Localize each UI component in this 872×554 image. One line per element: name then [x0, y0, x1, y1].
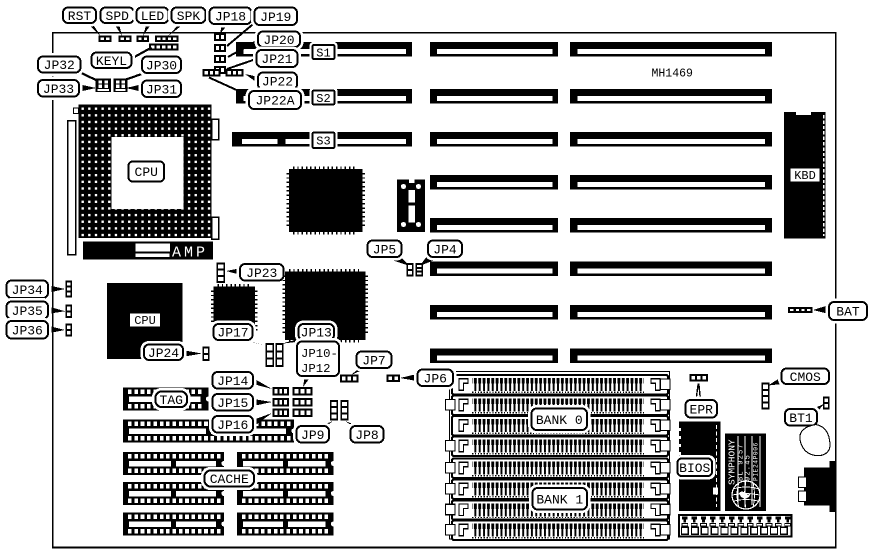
svg-text:SPD: SPD	[106, 9, 130, 24]
svg-text:JP14: JP14	[217, 374, 248, 389]
svg-text:JP19: JP19	[260, 10, 291, 25]
svg-text:BAT: BAT	[836, 305, 860, 320]
svg-text:LED: LED	[141, 9, 165, 24]
svg-text:JP34: JP34	[12, 283, 43, 298]
svg-text:JP31: JP31	[146, 82, 177, 97]
svg-text:TAG: TAG	[160, 393, 183, 408]
svg-text:JP18: JP18	[215, 9, 246, 24]
svg-text:JP22A: JP22A	[255, 94, 294, 109]
svg-text:92.45: 92.45	[745, 454, 753, 481]
svg-text:S3: S3	[316, 135, 330, 149]
svg-text:CPU: CPU	[134, 314, 156, 328]
svg-text:JP20: JP20	[263, 33, 294, 48]
svg-text:JP35: JP35	[12, 304, 43, 319]
svg-text:JP17: JP17	[217, 326, 248, 341]
svg-text:MH1469: MH1469	[652, 68, 694, 81]
svg-text:PIE24P006: PIE24P006	[753, 442, 760, 481]
svg-text:SPK: SPK	[177, 9, 201, 24]
svg-text:JP7: JP7	[362, 353, 385, 368]
svg-text:JP32: JP32	[44, 58, 75, 73]
svg-text:CMOS: CMOS	[790, 370, 821, 385]
svg-text:JP9: JP9	[301, 428, 324, 443]
svg-text:KBD: KBD	[794, 169, 816, 183]
svg-text:JP8: JP8	[355, 428, 378, 443]
svg-text:S2: S2	[316, 92, 330, 106]
svg-text:JP6: JP6	[424, 371, 447, 386]
svg-text:JP16: JP16	[217, 418, 248, 433]
svg-text:JP15: JP15	[217, 396, 248, 411]
svg-text:EPR: EPR	[690, 402, 714, 417]
svg-text:AMP: AMP	[172, 245, 208, 262]
svg-text:RST: RST	[68, 9, 92, 24]
svg-text:JP22: JP22	[262, 75, 293, 90]
svg-text:JP5: JP5	[373, 242, 396, 257]
svg-text:BT1: BT1	[789, 411, 813, 426]
svg-text:BIOS: BIOS	[679, 461, 710, 476]
svg-text:SYMPHONY: SYMPHONY	[727, 439, 738, 485]
svg-text:CACHE: CACHE	[210, 472, 249, 487]
svg-text:JP36: JP36	[12, 323, 43, 338]
svg-text:JP12: JP12	[301, 362, 331, 376]
svg-text:JP24: JP24	[148, 346, 179, 361]
svg-text:JP23: JP23	[246, 266, 277, 281]
svg-text:JP30: JP30	[146, 58, 177, 73]
svg-text:BANK 0: BANK 0	[536, 413, 583, 428]
svg-text:JP21: JP21	[261, 52, 292, 67]
svg-text:S1: S1	[316, 46, 330, 60]
svg-text:BANK 1: BANK 1	[536, 492, 583, 507]
svg-text:JP10-: JP10-	[301, 347, 338, 361]
svg-text:CPU: CPU	[135, 165, 158, 180]
svg-text:JP33: JP33	[43, 82, 74, 97]
svg-text:JP4: JP4	[433, 242, 457, 257]
svg-text:KEYL: KEYL	[96, 54, 127, 69]
